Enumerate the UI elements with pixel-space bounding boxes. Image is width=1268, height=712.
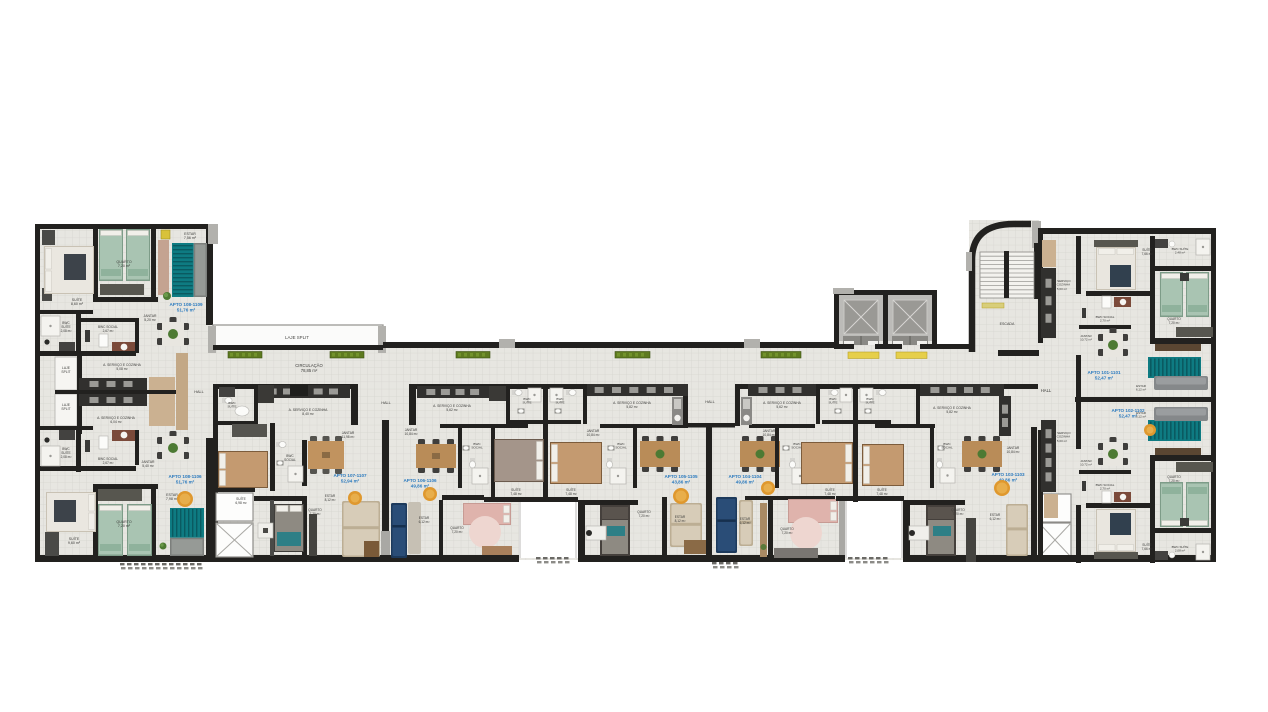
svg-text:52,47 m²: 52,47 m² bbox=[1095, 375, 1114, 380]
svg-text:5,60 m²: 5,60 m² bbox=[1057, 439, 1067, 443]
svg-text:52,47 m²: 52,47 m² bbox=[1119, 413, 1138, 418]
svg-text:2,67 m²: 2,67 m² bbox=[103, 329, 114, 333]
svg-text:APTO 104-1104: APTO 104-1104 bbox=[728, 474, 762, 479]
svg-text:52,94 m²: 52,94 m² bbox=[341, 478, 360, 483]
svg-text:7,20 m²: 7,20 m² bbox=[452, 530, 463, 534]
svg-text:51,76 m²: 51,76 m² bbox=[176, 479, 195, 484]
svg-text:9,60 m²: 9,60 m² bbox=[68, 541, 81, 545]
svg-text:APTO 103-1103: APTO 103-1103 bbox=[991, 472, 1025, 477]
svg-text:7,48 m²: 7,48 m² bbox=[510, 492, 522, 496]
svg-text:43,86 m²: 43,86 m² bbox=[672, 479, 691, 484]
svg-text:SOCIAL: SOCIAL bbox=[284, 458, 296, 462]
svg-text:5,82 m²: 5,82 m² bbox=[946, 410, 958, 414]
svg-text:2,08 m²: 2,08 m² bbox=[61, 455, 72, 459]
svg-text:5,60 m²: 5,60 m² bbox=[1057, 287, 1067, 291]
svg-text:SOCIAL: SOCIAL bbox=[615, 446, 627, 450]
svg-text:6,12 m²: 6,12 m² bbox=[419, 520, 430, 524]
svg-text:APTO 108-1109: APTO 108-1109 bbox=[169, 302, 203, 307]
svg-text:49,86 m²: 49,86 m² bbox=[411, 483, 430, 488]
svg-text:10,72 m²: 10,72 m² bbox=[1080, 463, 1092, 467]
svg-text:APTO 101-1101: APTO 101-1101 bbox=[1087, 370, 1121, 375]
svg-text:7,20 m²: 7,20 m² bbox=[782, 531, 793, 535]
svg-text:HALL: HALL bbox=[381, 401, 391, 405]
svg-text:2,70 m²: 2,70 m² bbox=[1100, 487, 1110, 491]
svg-text:5,62 m²: 5,62 m² bbox=[776, 405, 788, 409]
svg-text:2,67 m²: 2,67 m² bbox=[103, 461, 114, 465]
svg-text:ESCADA: ESCADA bbox=[1000, 322, 1015, 326]
svg-text:SPLIT: SPLIT bbox=[61, 407, 70, 411]
svg-text:5,82 m²: 5,82 m² bbox=[626, 405, 638, 409]
svg-text:7,98 m²: 7,98 m² bbox=[166, 497, 179, 501]
svg-text:7,20 m²: 7,20 m² bbox=[118, 264, 131, 268]
svg-text:8,40 m²: 8,40 m² bbox=[302, 412, 314, 416]
svg-text:7,66 m²: 7,66 m² bbox=[1142, 252, 1153, 256]
svg-text:7,48 m²: 7,48 m² bbox=[565, 492, 577, 496]
svg-text:SUÍTE: SUÍTE bbox=[522, 401, 531, 405]
svg-text:SOCIAL: SOCIAL bbox=[941, 446, 953, 450]
svg-text:6,12 m²: 6,12 m² bbox=[1136, 388, 1146, 392]
svg-text:7,20 m²: 7,20 m² bbox=[1169, 321, 1180, 325]
svg-text:6,12 m²: 6,12 m² bbox=[740, 521, 751, 525]
svg-text:2,08 m²: 2,08 m² bbox=[61, 329, 72, 333]
svg-text:6,12 m²: 6,12 m² bbox=[1136, 415, 1146, 419]
svg-text:5,62 m²: 5,62 m² bbox=[446, 408, 458, 412]
svg-text:E COZINHA: E COZINHA bbox=[1054, 435, 1070, 439]
svg-text:10,72 m²: 10,72 m² bbox=[1080, 338, 1092, 342]
svg-text:6,98 m²: 6,98 m² bbox=[235, 501, 247, 505]
svg-text:8,12 m²: 8,12 m² bbox=[675, 519, 686, 523]
svg-text:8,60 m²: 8,60 m² bbox=[71, 302, 84, 306]
svg-text:2,48 m²: 2,48 m² bbox=[1175, 251, 1185, 255]
svg-text:8,12 m²: 8,12 m² bbox=[325, 498, 336, 502]
svg-text:11,98 m²: 11,98 m² bbox=[342, 435, 356, 439]
svg-text:7,20 m²: 7,20 m² bbox=[639, 514, 650, 518]
svg-text:SUÍTE: SUÍTE bbox=[828, 401, 837, 405]
svg-text:2,08 m²: 2,08 m² bbox=[1175, 549, 1185, 553]
svg-text:10,84 m²: 10,84 m² bbox=[1006, 450, 1020, 454]
svg-text:2,70 m²: 2,70 m² bbox=[1100, 319, 1110, 323]
svg-text:APTO 105-1105: APTO 105-1105 bbox=[664, 474, 698, 479]
svg-text:7,56 m²: 7,56 m² bbox=[184, 236, 197, 240]
svg-text:HALL: HALL bbox=[1041, 388, 1052, 393]
svg-text:6,04 m²: 6,04 m² bbox=[110, 420, 122, 424]
svg-text:10,84 m²: 10,84 m² bbox=[404, 432, 418, 436]
svg-text:SPLIT: SPLIT bbox=[61, 370, 70, 374]
svg-text:5,08 m²: 5,08 m² bbox=[116, 367, 128, 371]
svg-text:5,40 m²: 5,40 m² bbox=[142, 464, 154, 468]
svg-text:51,76 m²: 51,76 m² bbox=[177, 307, 196, 312]
svg-text:SUÍTE: SUÍTE bbox=[865, 401, 874, 405]
svg-text:7,66 m²: 7,66 m² bbox=[1142, 547, 1153, 551]
svg-text:HALL: HALL bbox=[194, 390, 204, 394]
svg-text:7,20 m²: 7,20 m² bbox=[1169, 479, 1180, 483]
svg-text:APTO 108-1106: APTO 108-1106 bbox=[168, 474, 202, 479]
svg-text:7,20 m²: 7,20 m² bbox=[118, 524, 131, 528]
svg-text:6,12 m²: 6,12 m² bbox=[990, 517, 1001, 521]
svg-text:49,86 m²: 49,86 m² bbox=[736, 479, 755, 484]
svg-text:7,48 m²: 7,48 m² bbox=[824, 492, 836, 496]
svg-text:78,85 m²: 78,85 m² bbox=[301, 368, 318, 373]
svg-text:LAJE SPLIT: LAJE SPLIT bbox=[285, 335, 309, 340]
svg-text:HALL: HALL bbox=[705, 400, 715, 404]
svg-text:10,84 m²: 10,84 m² bbox=[586, 433, 600, 437]
svg-text:SUÍTE: SUÍTE bbox=[555, 401, 564, 405]
svg-text:7,48 m²: 7,48 m² bbox=[876, 492, 888, 496]
svg-text:APTO 106-1106: APTO 106-1106 bbox=[403, 478, 437, 483]
svg-text:E COZINHA: E COZINHA bbox=[1054, 283, 1070, 287]
svg-text:SOCIAL: SOCIAL bbox=[471, 446, 483, 450]
svg-text:7,20 m²: 7,20 m² bbox=[953, 512, 964, 516]
svg-text:5,20 m²: 5,20 m² bbox=[144, 318, 156, 322]
svg-text:SUÍTE: SUÍTE bbox=[227, 405, 236, 409]
svg-text:APTO 107-1107: APTO 107-1107 bbox=[333, 473, 367, 478]
